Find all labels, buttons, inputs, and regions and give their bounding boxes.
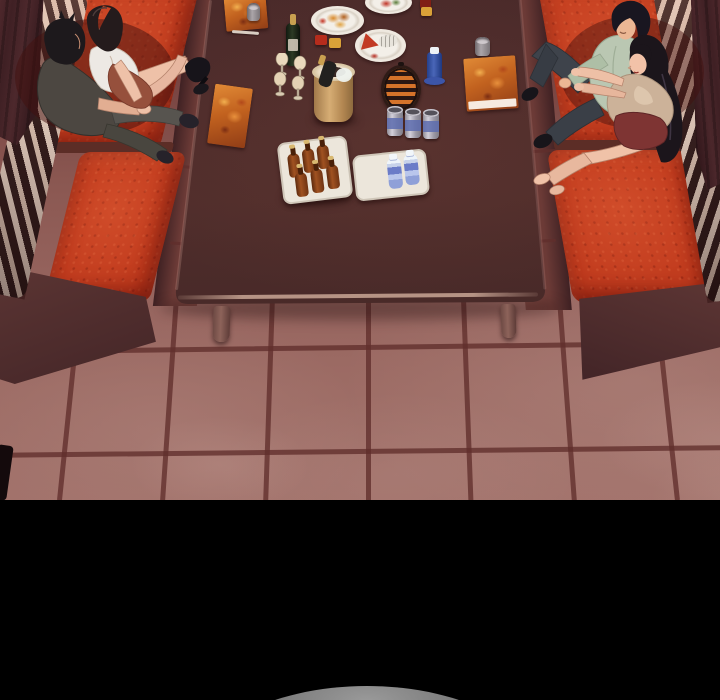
beer-can xyxy=(423,112,439,139)
right-woman-calf xyxy=(546,153,592,185)
grill-plate xyxy=(381,65,421,113)
beer-bottle-tray xyxy=(276,135,353,205)
right-woman-foot-2 xyxy=(549,184,566,197)
gray-dome-shape xyxy=(187,686,547,700)
comic-page xyxy=(0,0,720,700)
condiment-red xyxy=(315,35,327,45)
cup xyxy=(247,5,260,21)
condiment-yellow-2 xyxy=(421,7,432,16)
water-bottle-tray xyxy=(352,148,430,201)
beer-bottle xyxy=(326,164,341,189)
condiment-yellow xyxy=(329,38,341,48)
table-leg-right xyxy=(500,304,516,339)
plate-chicken xyxy=(311,6,364,35)
right-woman-mouth xyxy=(634,72,639,73)
cup xyxy=(475,39,490,56)
shrimp-cone xyxy=(361,33,380,52)
table-leg-left xyxy=(212,306,230,343)
blue-bottle xyxy=(427,52,442,82)
right-couple xyxy=(512,0,720,209)
bucket-napkin xyxy=(336,68,352,82)
wine-glasses xyxy=(274,53,318,101)
plate-seafood xyxy=(355,29,406,62)
left-man-hair xyxy=(44,10,85,65)
right-man-hand xyxy=(559,78,571,88)
right-woman-skirt xyxy=(614,112,667,149)
right-woman-hand-2 xyxy=(574,83,584,91)
beer-can xyxy=(405,111,421,138)
menu-card xyxy=(224,0,269,32)
fish-slices xyxy=(378,34,397,48)
right-woman-hand-1 xyxy=(571,68,581,76)
beer-bottle xyxy=(310,168,325,193)
menu-card xyxy=(463,55,519,111)
water-bottle xyxy=(403,154,420,185)
beer-can xyxy=(387,109,403,136)
beer-bottle xyxy=(294,172,309,197)
comic-panel xyxy=(0,0,720,500)
water-bottle xyxy=(386,158,403,189)
ice-bucket xyxy=(314,69,353,122)
panel-gutter xyxy=(0,500,720,700)
left-couple xyxy=(15,0,225,202)
right-man-shoe-1 xyxy=(519,84,541,103)
